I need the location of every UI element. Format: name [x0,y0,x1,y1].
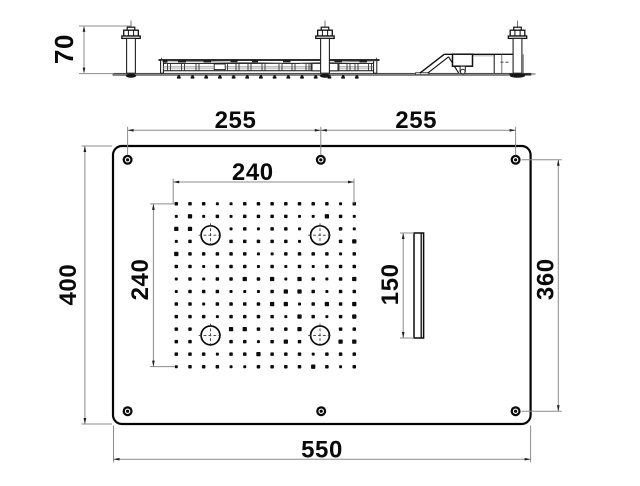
svg-text:150: 150 [377,263,404,305]
svg-text:255: 255 [215,107,257,134]
svg-text:70: 70 [49,34,79,64]
svg-text:400: 400 [55,264,82,306]
svg-text:550: 550 [301,436,343,463]
svg-text:255: 255 [395,107,437,134]
svg-text:240: 240 [127,259,154,301]
svg-text:360: 360 [532,258,559,300]
svg-text:240: 240 [232,159,274,186]
